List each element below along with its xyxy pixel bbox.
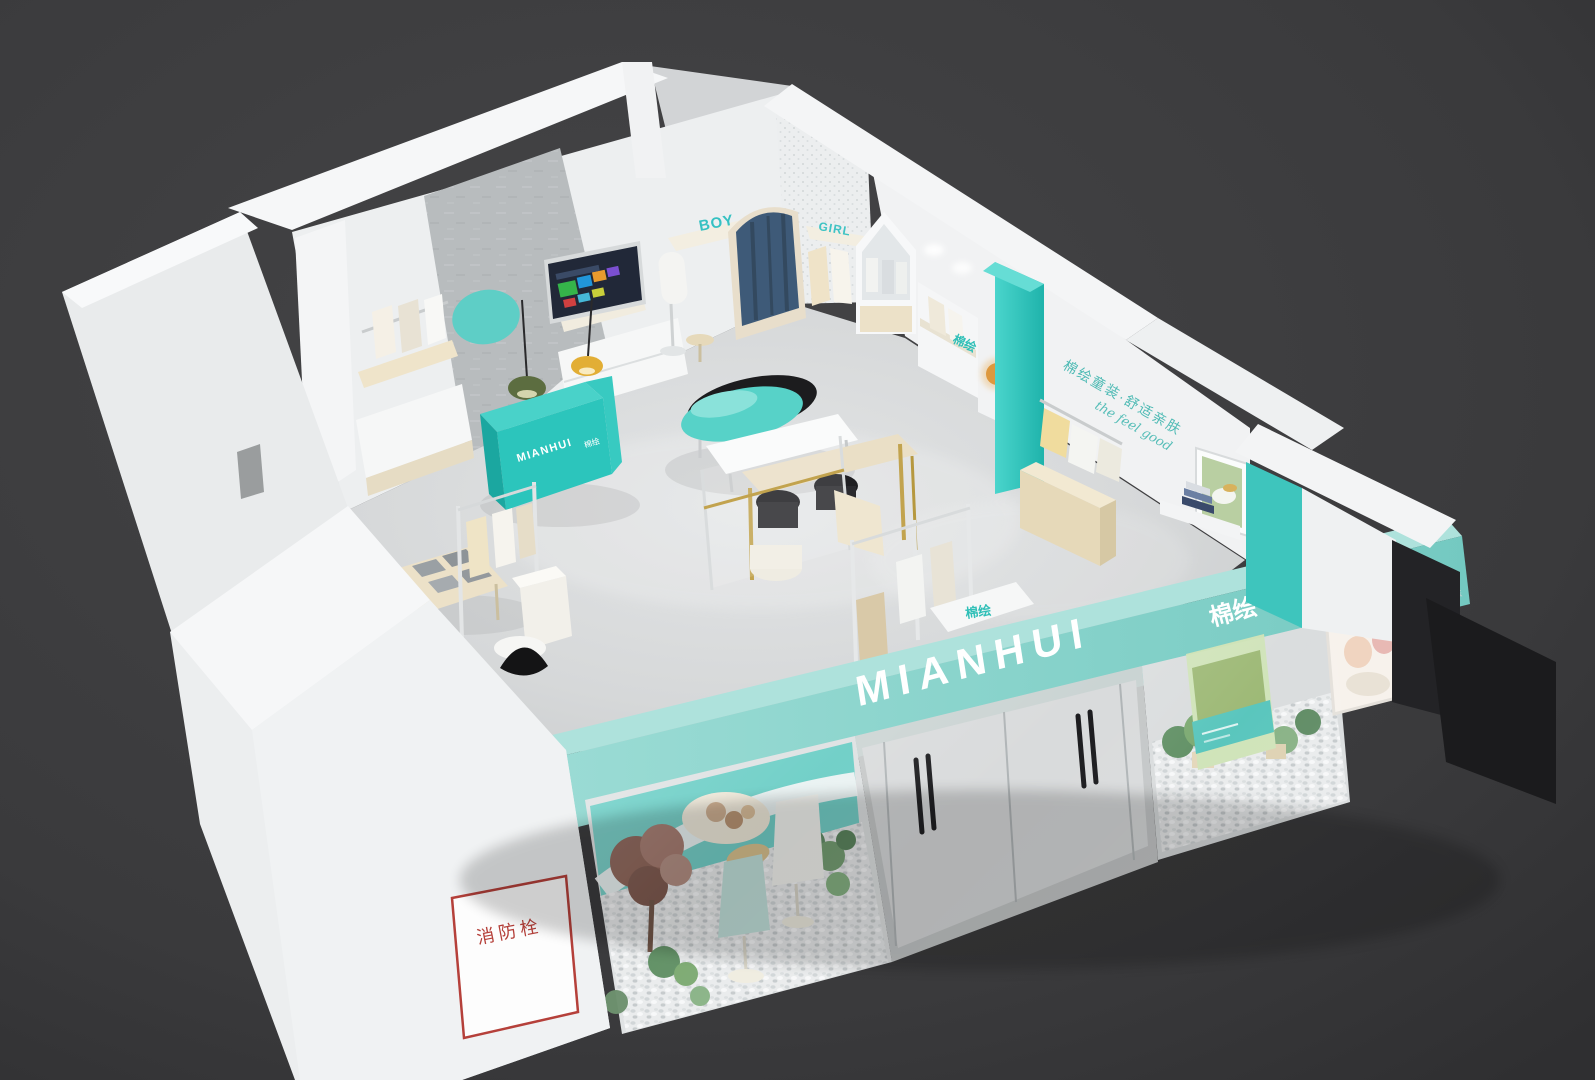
store-render: BOY GIRL 棉绘 [0,0,1595,1080]
tan-coat [856,592,888,664]
building-shadow [460,790,1500,970]
fitting-room [728,207,806,340]
store-render-stage: BOY GIRL 棉绘 [0,0,1595,1080]
